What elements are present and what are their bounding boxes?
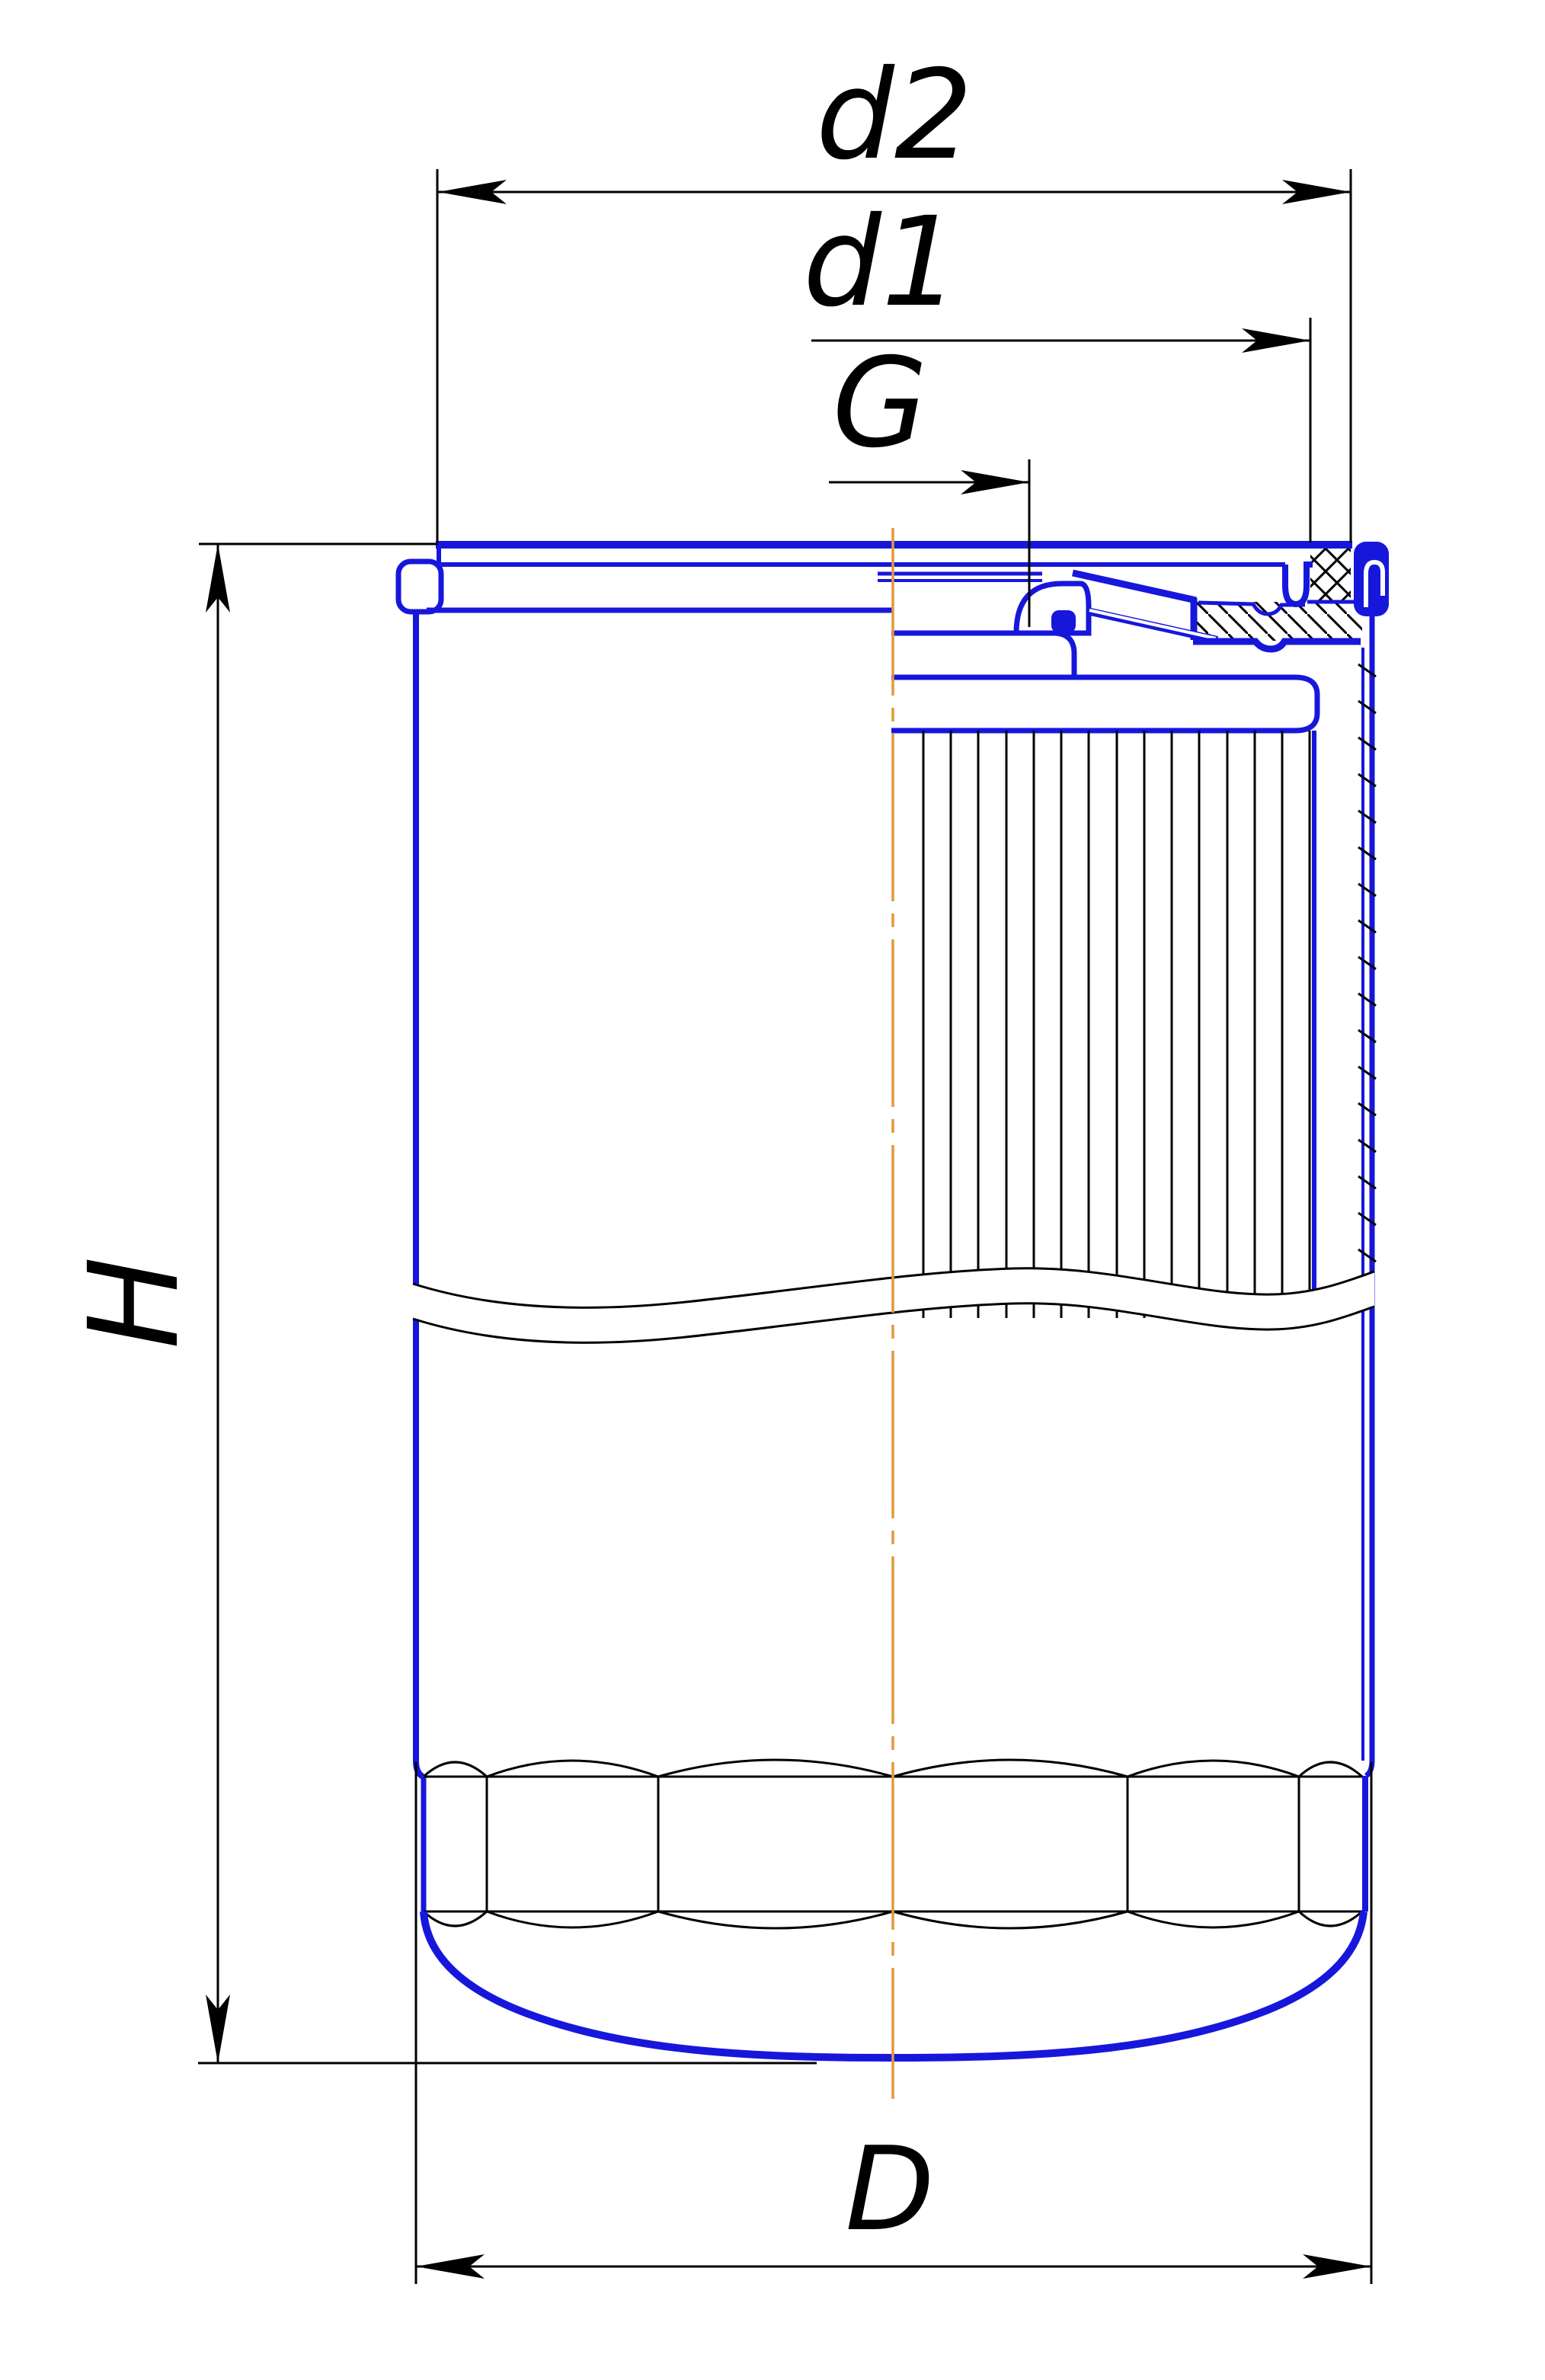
flat-bottom-arc [1299,1911,1362,1926]
thread-boss [878,574,1089,677]
thread-profile [1051,610,1076,633]
can-walls [416,612,1376,1911]
flat-bottom-arc [658,1911,893,1928]
flat-bottom-arc [1128,1911,1299,1927]
flat-top-arc [1128,1761,1299,1777]
flat-top-arc [1299,1762,1362,1777]
flat-top-arc [424,1762,487,1777]
flat-bottom-arc [487,1911,658,1927]
flat-bottom-arc [893,1911,1128,1928]
label-d1: d1 [803,191,960,334]
filter-element [891,677,1317,1318]
dimensions: d2 d1 G H D [63,44,1371,2284]
flat-top-arc [893,1760,1128,1777]
dimension-g: G [829,332,1029,627]
oil-filter-technical-drawing: d2 d1 G H D [0,0,1545,2380]
label-d2: d2 [816,44,973,187]
base-plate-slope-upper [1073,573,1196,600]
label-d: D [845,2122,934,2257]
drawing-sheet: d2 d1 G H D [0,0,1545,2380]
crimp-groove [1285,565,1313,604]
gasket-hatch [1310,545,1351,600]
flat-top-arc [487,1761,658,1777]
flat-bottom-arc [424,1911,487,1926]
base-plate-bottom [1193,641,1361,649]
label-g: G [832,332,928,475]
element-pleats [923,731,1310,1318]
element-end-cap [891,677,1317,731]
flat-top-arc [658,1760,893,1777]
label-h: H [63,1256,206,1349]
rolled-seam-left [398,561,441,612]
section-hatching [1196,545,1362,641]
center-tube-wall [1056,633,1074,677]
